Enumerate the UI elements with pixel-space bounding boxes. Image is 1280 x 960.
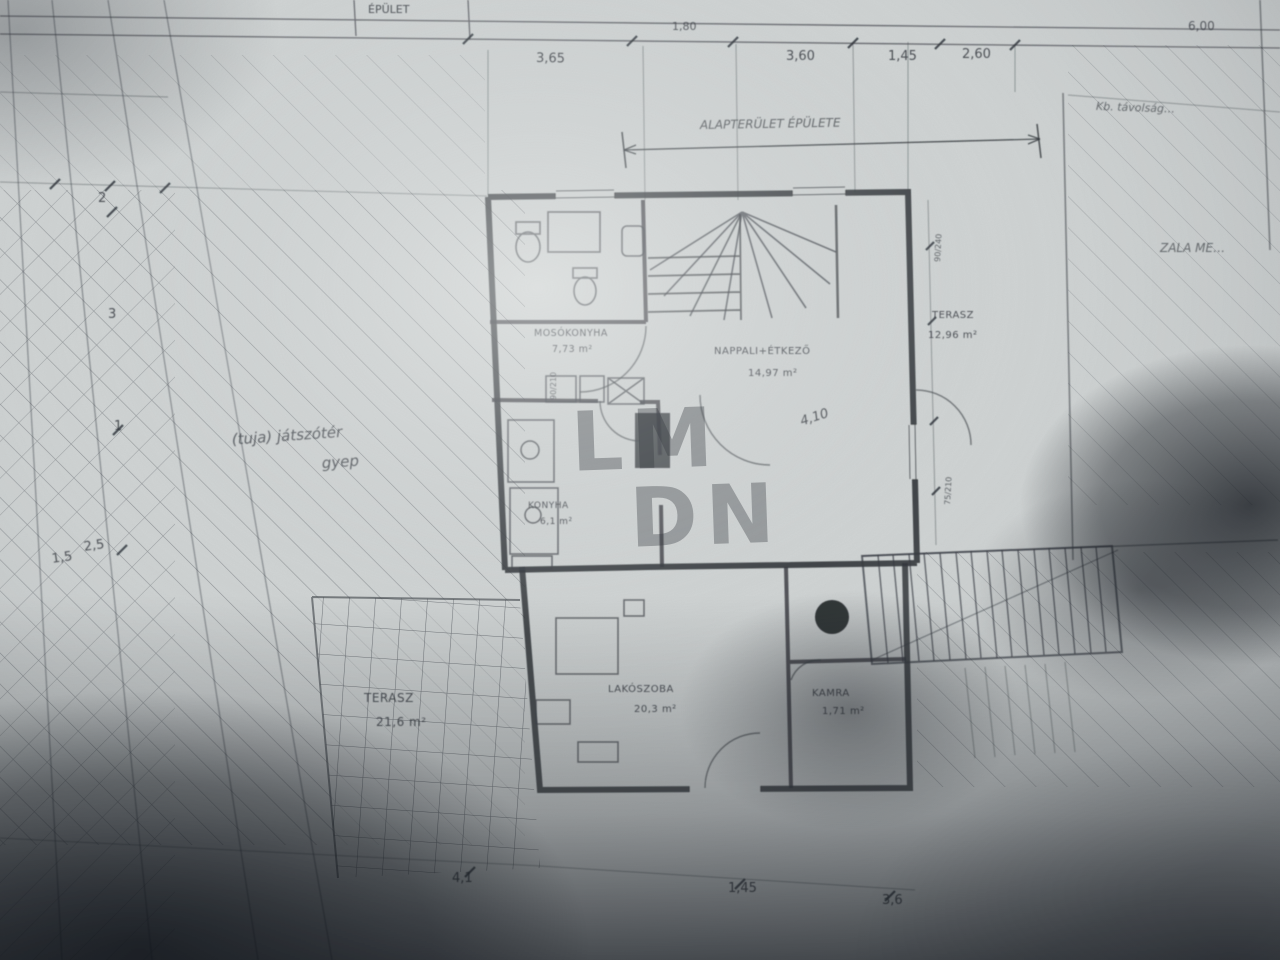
- floorplan-photo: ÉPÜLET ALAPTERÜLET ÉPÜLETE 6,00 3,65 1,8…: [0, 0, 1280, 960]
- floorplan-drawing: ÉPÜLET ALAPTERÜLET ÉPÜLETE 6,00 3,65 1,8…: [0, 0, 1280, 960]
- watermark-text: DN: [628, 466, 784, 566]
